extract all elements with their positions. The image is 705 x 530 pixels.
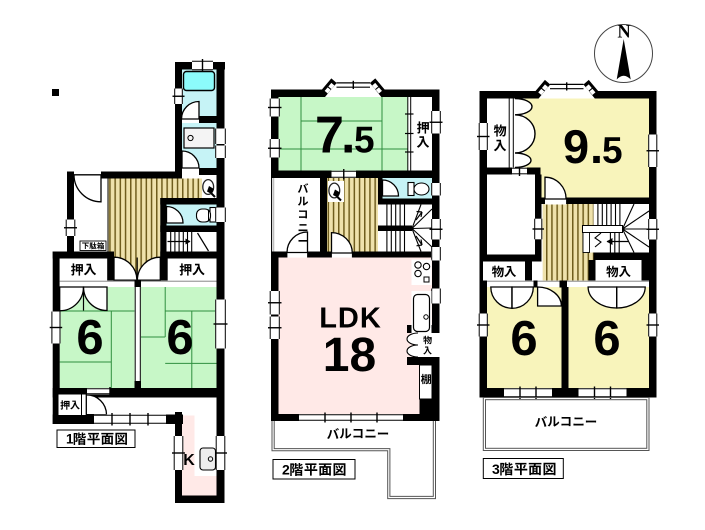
svg-text:K: K bbox=[183, 452, 195, 469]
svg-text:5: 5 bbox=[602, 130, 623, 171]
svg-text:5: 5 bbox=[354, 120, 375, 161]
svg-text:6: 6 bbox=[166, 311, 193, 365]
svg-text:6: 6 bbox=[593, 312, 620, 366]
svg-text:6: 6 bbox=[76, 311, 103, 365]
svg-text:2: 2 bbox=[282, 462, 290, 478]
svg-text:1: 1 bbox=[66, 432, 74, 447]
svg-text:9: 9 bbox=[563, 120, 589, 173]
svg-text:18: 18 bbox=[323, 329, 376, 382]
svg-text:3: 3 bbox=[492, 461, 500, 477]
svg-text:N: N bbox=[617, 23, 631, 43]
svg-text:7: 7 bbox=[315, 107, 344, 165]
svg-text:6: 6 bbox=[510, 312, 537, 366]
